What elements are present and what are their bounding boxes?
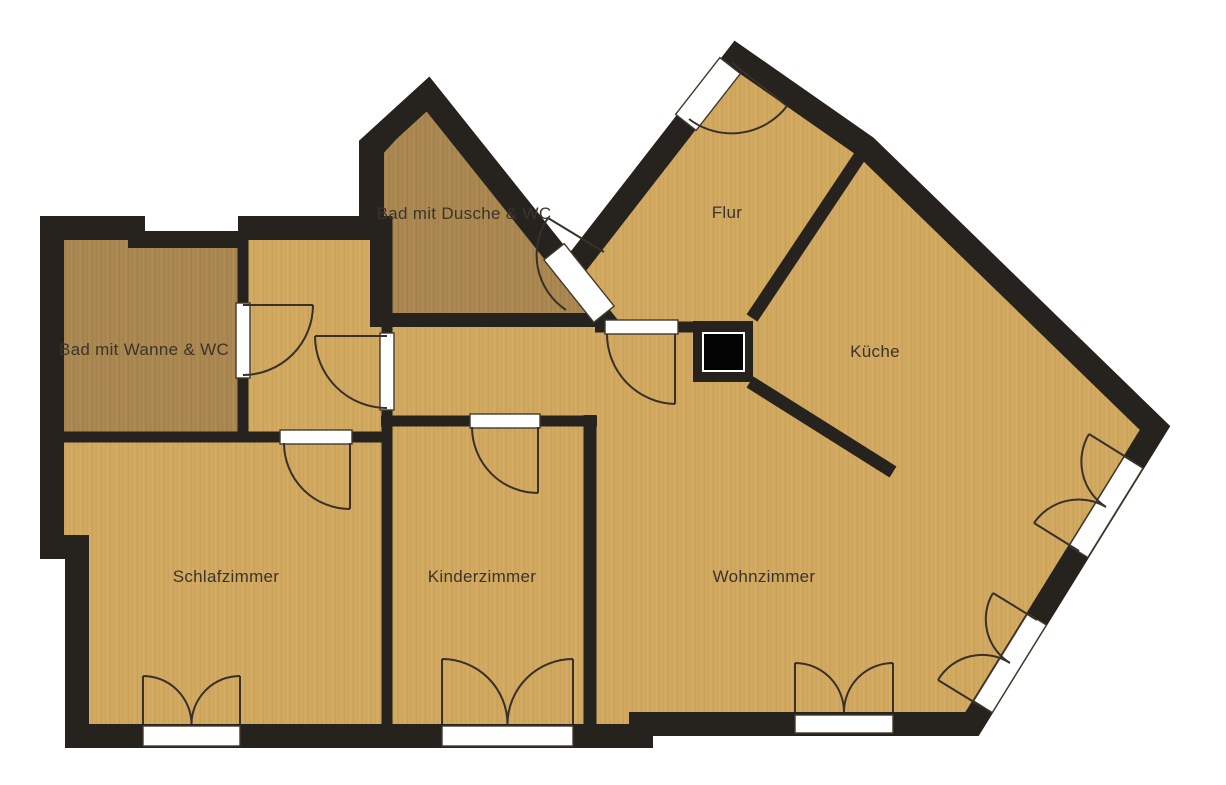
room-label-bad-dusche: Bad mit Dusche & WC — [377, 204, 552, 223]
floorplan-canvas: Bad mit Wanne & WC Bad mit Dusche & WC F… — [0, 0, 1226, 785]
window-schlafzimmer — [143, 726, 240, 746]
door-opening-hall — [380, 333, 394, 410]
room-label-flur: Flur — [712, 203, 743, 222]
window-wohnzimmer — [795, 715, 893, 733]
room-label-wohnzimmer: Wohnzimmer — [713, 567, 816, 586]
door-opening-flur-corridor — [605, 320, 678, 334]
room-label-schlafzimmer: Schlafzimmer — [173, 567, 280, 586]
door-opening-bad-wanne — [236, 303, 250, 378]
door-opening-schlafzimmer — [280, 430, 352, 444]
room-floor-bad-wanne — [52, 228, 243, 437]
window-kinderzimmer — [442, 726, 573, 746]
apartment: Bad mit Wanne & WC Bad mit Dusche & WC F… — [46, 57, 1155, 746]
apartment-floorplan: Bad mit Wanne & WC Bad mit Dusche & WC F… — [0, 0, 1226, 785]
room-label-kinderzimmer: Kinderzimmer — [428, 567, 536, 586]
facade-notch — [145, 210, 238, 231]
shaft-pillar — [703, 333, 744, 371]
room-label-kueche: Küche — [850, 342, 900, 361]
door-opening-kinderzimmer — [470, 414, 540, 428]
room-label-bad-wanne: Bad mit Wanne & WC — [59, 340, 229, 359]
